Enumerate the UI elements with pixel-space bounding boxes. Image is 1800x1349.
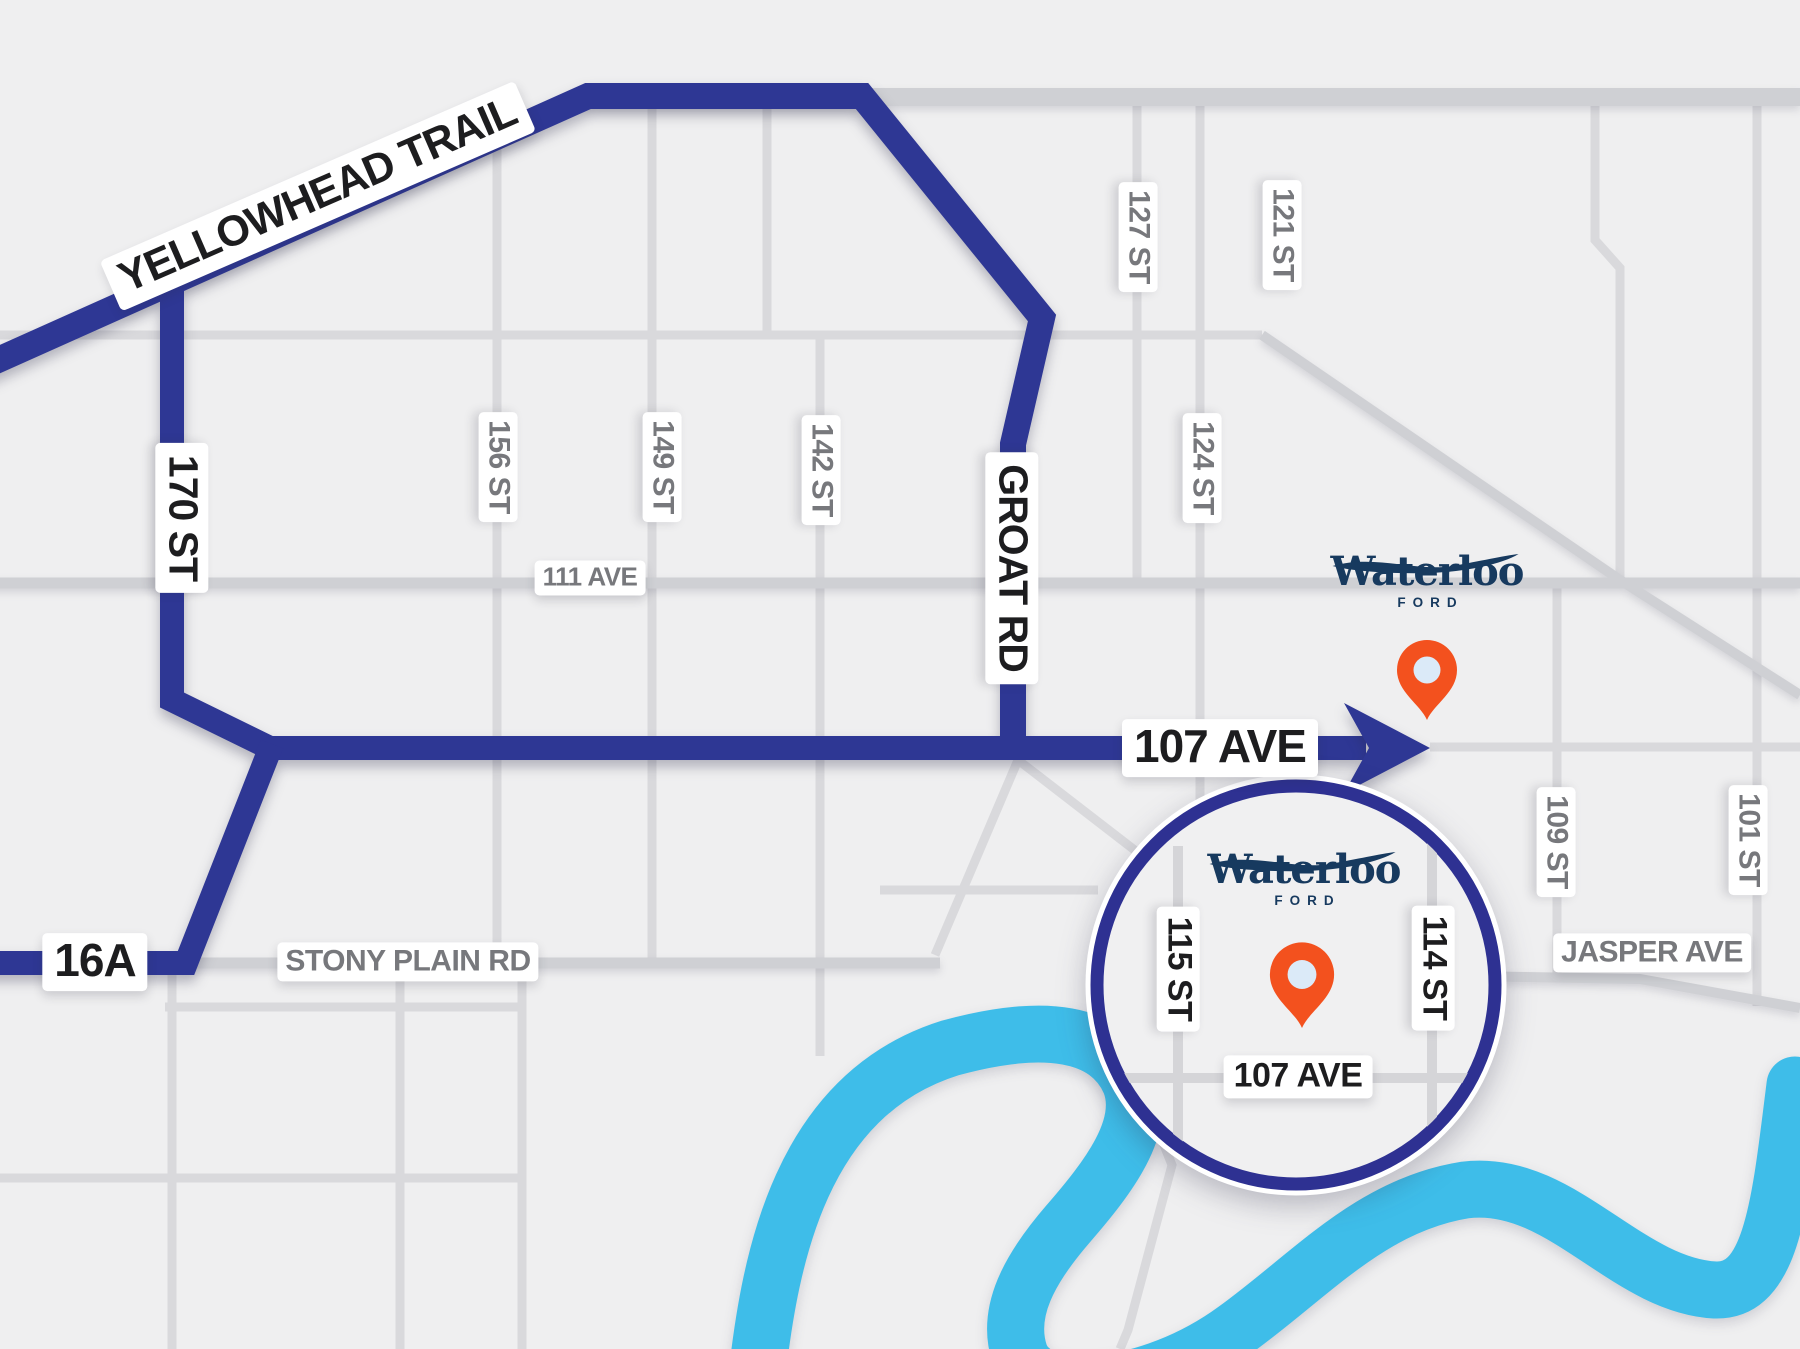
swoosh-shape [1210, 852, 1396, 871]
waterloo-ford-logo: Waterloo FORD [1331, 552, 1524, 610]
pin-hole [1414, 657, 1441, 684]
street-label-156-st: 156 ST [478, 412, 517, 522]
street-label-111-ave: 111 AVE [535, 560, 646, 595]
brand-division: FORD [1331, 595, 1524, 610]
street-label-124-st: 124 ST [1182, 413, 1221, 523]
brand-division: FORD [1208, 893, 1401, 908]
swoosh-shape [1333, 554, 1519, 573]
pin-hole [1288, 960, 1317, 989]
waterloo-ford-logo: Waterloo FORD [1208, 850, 1401, 908]
street-label-149-st: 149 ST [642, 412, 681, 522]
waterloo-swoosh-icon [1208, 852, 1398, 872]
street-label-142-st: 142 ST [801, 415, 840, 525]
street-label-109-st: 109 ST [1536, 787, 1575, 897]
waterloo-swoosh-icon [1331, 554, 1521, 574]
street-label-101-st: 101 ST [1728, 785, 1767, 895]
inset-label-115-st: 115 ST [1156, 907, 1199, 1032]
directions-map: YELLOWHEAD TRAIL 170 ST GROAT RD 107 AVE… [0, 0, 1800, 1349]
road-label-groat-rd: GROAT RD [986, 452, 1039, 684]
street-label-127-st: 127 ST [1118, 182, 1157, 292]
road-label-170-st: 170 ST [156, 443, 209, 593]
road-label-107-ave: 107 AVE [1122, 719, 1318, 777]
street-label-121-st: 121 ST [1262, 180, 1301, 290]
street-label-stony-plain-rd: STONY PLAIN RD [277, 942, 538, 981]
inset-label-107-ave: 107 AVE [1224, 1055, 1373, 1098]
road-label-16a: 16A [42, 933, 147, 991]
street-label-jasper-ave: JASPER AVE [1553, 933, 1751, 972]
inset-label-114-st: 114 ST [1411, 906, 1454, 1031]
